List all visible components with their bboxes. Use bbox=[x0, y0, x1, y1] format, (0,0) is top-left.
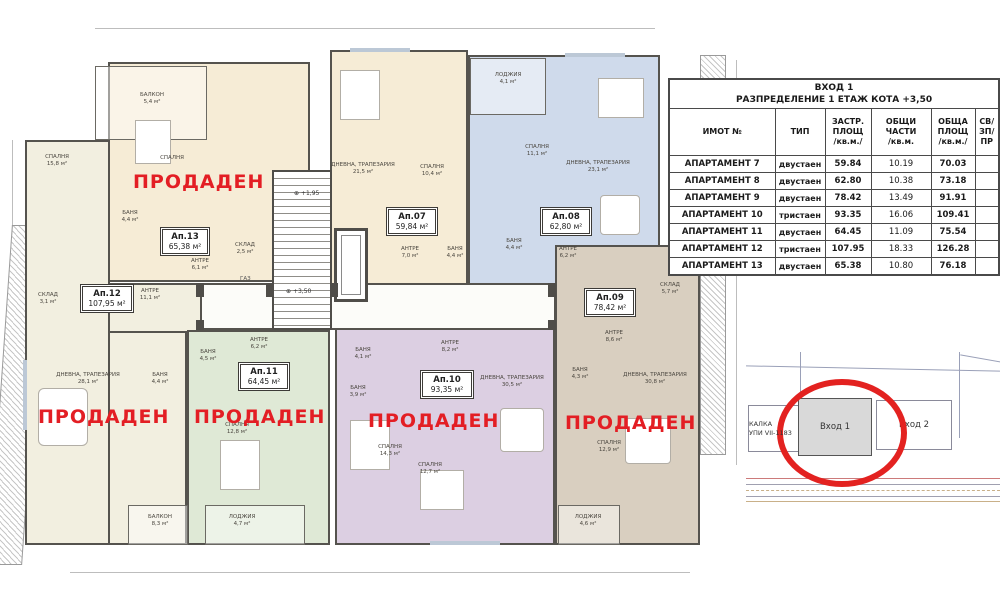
room-label: ДНЕВНА, ТРАПЕЗАРИЯ30,8 м² bbox=[622, 372, 688, 386]
col-header-obshti: ОБЩИ ЧАСТИ /кв.м. bbox=[871, 109, 931, 156]
cell-zastr: 107.95 bbox=[825, 241, 871, 258]
pillar bbox=[266, 283, 274, 297]
cell-imot: АПАРТАМЕНТ 12 bbox=[669, 241, 775, 258]
room-label: СПАЛНЯ10,4 м² bbox=[403, 164, 461, 178]
table-row: АПАРТАМЕНТ 12тристаен107.9518.33126.28 bbox=[669, 241, 999, 258]
col-header-sv: СВ/ ЗП/ ПР bbox=[975, 109, 999, 156]
cell-imot: АПАРТАМЕНТ 10 bbox=[669, 207, 775, 224]
corridor bbox=[200, 283, 556, 330]
furniture bbox=[220, 440, 260, 490]
road-line bbox=[746, 496, 1000, 497]
cell-tip: тристаен bbox=[775, 207, 825, 224]
room-label: ДНЕВНА, ТРАПЕЗАРИЯ23,1 м² bbox=[565, 160, 631, 174]
cell-sv bbox=[975, 207, 999, 224]
cell-obshta: 76.18 bbox=[931, 258, 975, 276]
room-label: БАНЯ4,4 м² bbox=[101, 210, 159, 224]
col-header-tip: ТИП bbox=[775, 109, 825, 156]
cell-obshti: 18.33 bbox=[871, 241, 931, 258]
parcel-line bbox=[959, 352, 960, 438]
cell-zastr: 78.42 bbox=[825, 190, 871, 207]
room-label: БАНЯ4,3 м² bbox=[558, 367, 602, 381]
level-marker-mid: ⊕ +1,95 bbox=[294, 190, 319, 197]
cell-sv bbox=[975, 156, 999, 173]
parcel-label: КАЛКА УПИ VII-1183 bbox=[749, 420, 792, 438]
apartment-label-11: Ап.11 64,45 м² bbox=[238, 362, 290, 391]
room-label: ДНЕВНА, ТРАПЕЗАРИЯ30,5 м² bbox=[479, 375, 545, 389]
cell-tip: двустаен bbox=[775, 258, 825, 276]
cell-obshti: 10.19 bbox=[871, 156, 931, 173]
cell-sv bbox=[975, 190, 999, 207]
cell-imot: АПАРТАМЕНТ 11 bbox=[669, 224, 775, 241]
room-label: СПАЛНЯ12,7 м² bbox=[401, 462, 459, 476]
pillar bbox=[330, 283, 338, 297]
room-label: ЛОДЖИЯ4,1 м² bbox=[479, 72, 537, 86]
loggia-08 bbox=[470, 58, 546, 115]
room-label: СПАЛНЯ11,1 м² bbox=[508, 144, 566, 158]
pillar bbox=[196, 283, 204, 297]
apartment-zone-12a bbox=[25, 140, 110, 545]
cell-obshti: 10.38 bbox=[871, 173, 931, 190]
apartment-label-08: Ап.08 62,80 м² bbox=[540, 207, 592, 236]
room-label: СПАЛНЯ14,3 м² bbox=[361, 444, 419, 458]
sold-stamp: ПРОДАДЕН bbox=[133, 171, 264, 193]
room-label: СПАЛНЯ15,8 м² bbox=[28, 154, 86, 168]
window bbox=[430, 541, 500, 545]
floor-plan: ВХОД 2 ⊕ +1,95 ⊕ +3,50 ГАЗ bbox=[0, 0, 745, 601]
cell-zastr: 65.38 bbox=[825, 258, 871, 276]
apartment-label-10: Ап.10 93,35 м² bbox=[420, 370, 474, 399]
apartment-label-09: Ап.09 78,42 м² bbox=[584, 288, 636, 317]
sold-stamp: ПРОДАДЕН bbox=[368, 410, 499, 432]
cell-tip: двустаен bbox=[775, 224, 825, 241]
cell-obshti: 16.06 bbox=[871, 207, 931, 224]
room-label: СПАЛНЯ12,9 м² bbox=[580, 440, 638, 454]
apartment-label-12: Ап.12 107,95 м² bbox=[80, 284, 134, 313]
room-label: АНТРЕ8,2 м² bbox=[421, 340, 479, 354]
cell-tip: двустаен bbox=[775, 156, 825, 173]
room-label: БАЛКОН5,4 м² bbox=[123, 92, 181, 106]
pillar bbox=[196, 320, 204, 330]
room-label: БАНЯ4,1 м² bbox=[341, 347, 385, 361]
apartment-label-13: Ап.13 65,38 м² bbox=[160, 227, 210, 256]
road-centerline bbox=[746, 490, 1000, 491]
room-label: СКЛАД2,5 м² bbox=[216, 242, 274, 256]
room-label: ДНЕВНА, ТРАПЕЗАРИЯ21,5 м² bbox=[330, 162, 396, 176]
col-header-obshta: ОБЩА ПЛОЩ /кв.м./ bbox=[931, 109, 975, 156]
pillar bbox=[548, 320, 556, 330]
room-label: БАЛКОН8,3 м² bbox=[131, 514, 189, 528]
room-label: БАНЯ4,5 м² bbox=[186, 349, 230, 363]
cell-zastr: 62.80 bbox=[825, 173, 871, 190]
page: ВХОД 2 ⊕ +1,95 ⊕ +3,50 ГАЗ bbox=[0, 0, 1000, 601]
table-title-line1: ВХОД 1 bbox=[672, 82, 996, 94]
room-label: АНТРЕ6,2 м² bbox=[230, 337, 288, 351]
room-label: ДНЕВНА, ТРАПЕЗАРИЯ28,1 м² bbox=[55, 372, 121, 386]
cell-sv bbox=[975, 173, 999, 190]
cell-obshta: 70.03 bbox=[931, 156, 975, 173]
cell-zastr: 59.84 bbox=[825, 156, 871, 173]
table-header-row: ИМОТ № ТИП ЗАСТР. ПЛОЩ /кв.м./ ОБЩИ ЧАСТ… bbox=[669, 109, 999, 156]
room-label: ЛОДЖИЯ4,7 м² bbox=[213, 514, 271, 528]
room-label: АНТРЕ8,6 м² bbox=[585, 330, 643, 344]
cell-obshti: 13.49 bbox=[871, 190, 931, 207]
cell-sv bbox=[975, 258, 999, 276]
pillar bbox=[548, 283, 556, 297]
room-label: БАНЯ4,4 м² bbox=[485, 238, 543, 252]
gas-label: ГАЗ bbox=[240, 276, 251, 282]
window bbox=[350, 48, 410, 52]
cell-obshta: 126.28 bbox=[931, 241, 975, 258]
sold-stamp: ПРОДАДЕН bbox=[194, 406, 325, 428]
furniture bbox=[500, 408, 544, 452]
sold-stamp: ПРОДАДЕН bbox=[38, 406, 169, 428]
apartment-label-07: Ап.07 59,84 м² bbox=[386, 207, 438, 236]
cell-zastr: 64.45 bbox=[825, 224, 871, 241]
cell-obshta: 109.41 bbox=[931, 207, 975, 224]
dimension-line-bottom bbox=[70, 572, 690, 573]
room-label: СПАЛНЯ bbox=[143, 155, 201, 162]
room-label: СКЛАД5,7 м² bbox=[641, 282, 699, 296]
window bbox=[565, 53, 625, 57]
road-line bbox=[746, 484, 1000, 485]
cell-tip: двустаен bbox=[775, 173, 825, 190]
parcel-line bbox=[960, 354, 1000, 362]
room-label: БАНЯ4,4 м² bbox=[131, 372, 189, 386]
cell-tip: тристаен bbox=[775, 241, 825, 258]
elevator-shaft bbox=[334, 228, 368, 302]
road-line bbox=[746, 501, 1000, 502]
cell-zastr: 93.35 bbox=[825, 207, 871, 224]
col-header-imot: ИМОТ № bbox=[669, 109, 775, 156]
sold-stamp: ПРОДАДЕН bbox=[565, 412, 696, 434]
table-title-line2: РАЗПРЕДЕЛЕНИЕ 1 ЕТАЖ КОТА +3,50 bbox=[672, 94, 996, 106]
unit-table: ВХОД 1 РАЗПРЕДЕЛЕНИЕ 1 ЕТАЖ КОТА +3,50 И… bbox=[668, 78, 1000, 276]
cell-imot: АПАРТАМЕНТ 9 bbox=[669, 190, 775, 207]
table-row: АПАРТАМЕНТ 8двустаен62.8010.3873.18 bbox=[669, 173, 999, 190]
room-label: АНТРЕ6,2 м² bbox=[539, 246, 597, 260]
level-marker-main: ⊕ +3,50 bbox=[286, 288, 311, 295]
room-label: БАНЯ4,4 м² bbox=[426, 246, 484, 260]
cell-obshta: 91.91 bbox=[931, 190, 975, 207]
furniture bbox=[340, 70, 380, 120]
highlight-circle bbox=[777, 379, 907, 487]
table-row: АПАРТАМЕНТ 10тристаен93.3516.06109.41 bbox=[669, 207, 999, 224]
table-row: АПАРТАМЕНТ 13двустаен65.3810.8076.18 bbox=[669, 258, 999, 276]
table-row: АПАРТАМЕНТ 11двустаен64.4511.0975.54 bbox=[669, 224, 999, 241]
cell-imot: АПАРТАМЕНТ 13 bbox=[669, 258, 775, 276]
table-row: АПАРТАМЕНТ 9двустаен78.4213.4991.91 bbox=[669, 190, 999, 207]
room-label: СКЛАД3,1 м² bbox=[26, 292, 70, 306]
window bbox=[23, 360, 27, 430]
cell-obshta: 73.18 bbox=[931, 173, 975, 190]
dimension-line-top bbox=[95, 28, 655, 29]
cell-sv bbox=[975, 241, 999, 258]
table-title-row: ВХОД 1 РАЗПРЕДЕЛЕНИЕ 1 ЕТАЖ КОТА +3,50 bbox=[669, 79, 999, 109]
col-header-zastr: ЗАСТР. ПЛОЩ /кв.м./ bbox=[825, 109, 871, 156]
room-label: БАНЯ3,9 м² bbox=[336, 385, 380, 399]
cell-sv bbox=[975, 224, 999, 241]
cell-imot: АПАРТАМЕНТ 8 bbox=[669, 173, 775, 190]
furniture bbox=[600, 195, 640, 235]
table-row: АПАРТАМЕНТ 7двустаен59.8410.1970.03 bbox=[669, 156, 999, 173]
cell-obshta: 75.54 bbox=[931, 224, 975, 241]
room-label: ЛОДЖИЯ4,6 м² bbox=[559, 514, 617, 528]
parcel-line bbox=[746, 365, 1000, 371]
cell-obshti: 11.09 bbox=[871, 224, 931, 241]
furniture bbox=[598, 78, 644, 118]
cell-obshti: 10.80 bbox=[871, 258, 931, 276]
room-label: АНТРЕ6,1 м² bbox=[171, 258, 229, 272]
cell-imot: АПАРТАМЕНТ 7 bbox=[669, 156, 775, 173]
cell-tip: двустаен bbox=[775, 190, 825, 207]
site-plan: Вход 1 Вход 2 КАЛКА УПИ VII-1183 bbox=[746, 348, 1000, 518]
